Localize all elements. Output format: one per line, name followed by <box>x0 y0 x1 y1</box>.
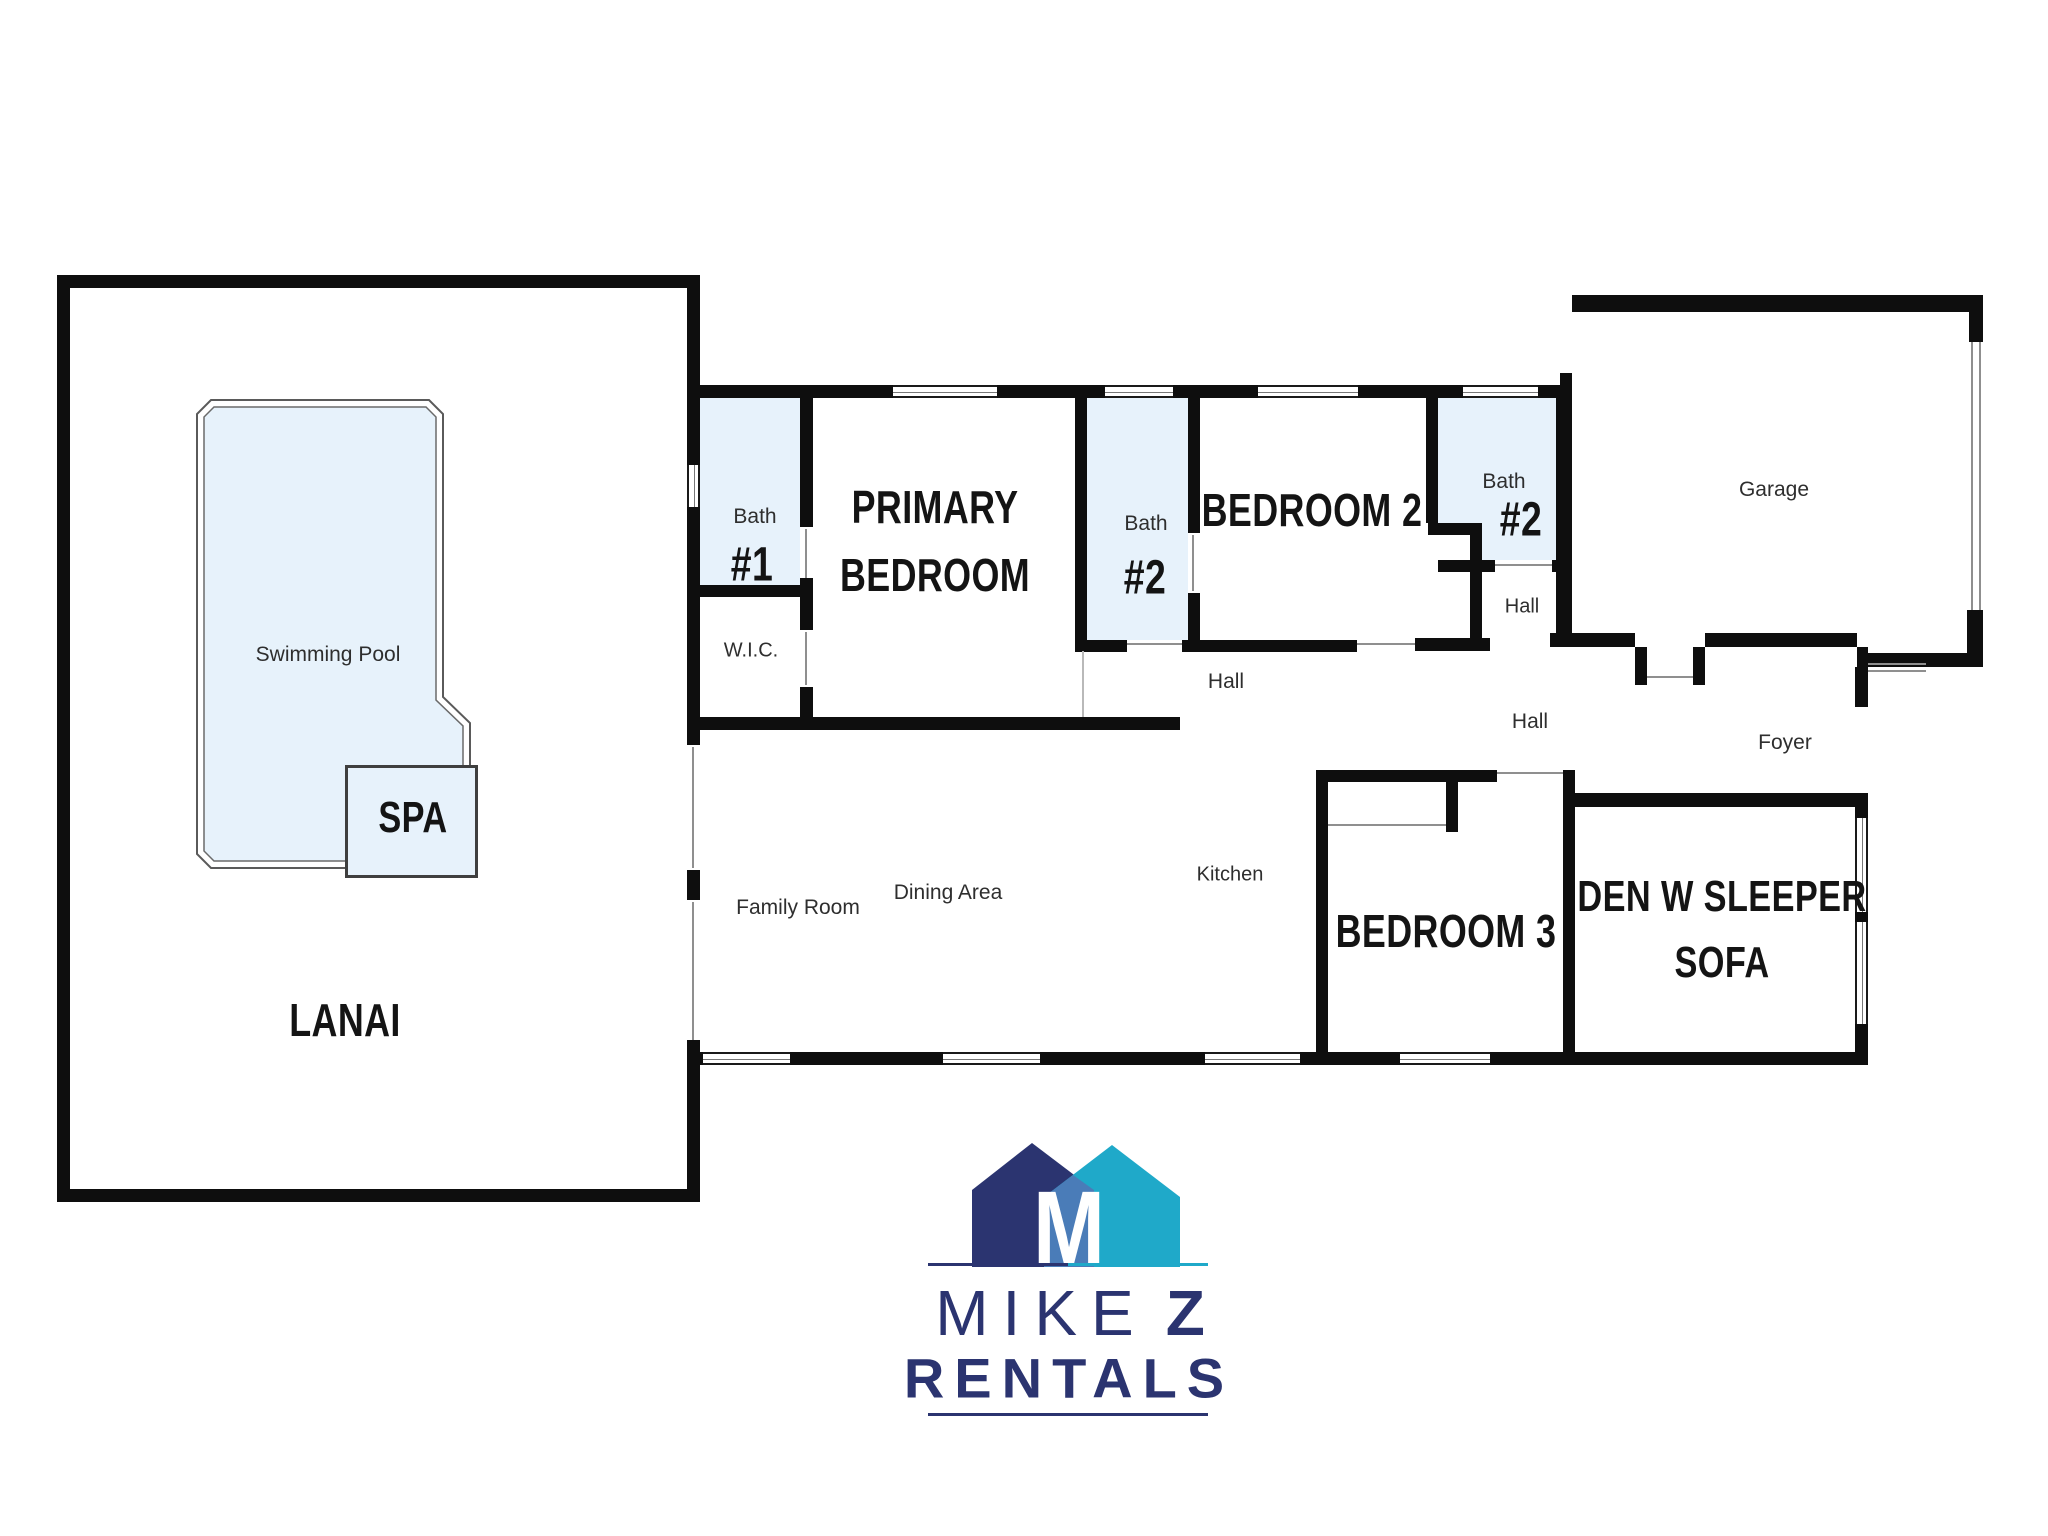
door-line <box>1495 564 1552 566</box>
wall <box>1446 782 1458 832</box>
wall <box>687 870 700 900</box>
wall <box>790 1052 943 1065</box>
wic-label: W.I.C. <box>724 640 778 663</box>
garage-door-line <box>1979 342 1981 610</box>
window <box>1400 1052 1490 1065</box>
wall <box>1173 385 1258 398</box>
window <box>1105 385 1173 398</box>
wall <box>1438 560 1495 572</box>
bath2a-label: Bath <box>1124 512 1167 536</box>
swimming-pool-label: Swimming Pool <box>256 643 401 667</box>
primary-bedroom-label-line1: PRIMARY <box>852 480 1019 534</box>
opening-line <box>1082 651 1084 717</box>
wall <box>1490 1052 1868 1065</box>
den-label-line1: DEN W SLEEPER <box>1577 872 1866 922</box>
wall <box>1967 610 1983 667</box>
door-threshold <box>1647 676 1693 678</box>
foyer-label: Foyer <box>1758 731 1812 755</box>
hall-main-label: Hall <box>1208 670 1244 694</box>
hall-upper-label: Hall <box>1505 596 1539 619</box>
garage-label: Garage <box>1739 478 1809 502</box>
logo-word-rentals: RENTALS <box>904 1346 1234 1411</box>
bedroom2-label: BEDROOM 2 <box>1202 483 1423 537</box>
wall <box>1300 1052 1400 1065</box>
wall <box>1316 770 1497 782</box>
bath2b-label: Bath <box>1482 470 1525 494</box>
wall <box>57 275 700 288</box>
wall <box>1040 1052 1205 1065</box>
dining-area-label: Dining Area <box>894 881 1003 905</box>
wall <box>1693 647 1705 685</box>
closet-line <box>1328 824 1446 826</box>
door-line <box>805 632 807 685</box>
garage-door-line <box>1971 342 1973 610</box>
wall <box>687 717 1180 730</box>
wall <box>57 1189 700 1202</box>
wall <box>1572 295 1983 312</box>
door-line <box>1357 643 1417 645</box>
wall <box>1969 312 1983 342</box>
door-line <box>1127 643 1182 645</box>
wall <box>1563 770 1575 1052</box>
logo-word-mike: MIKE <box>935 1277 1147 1349</box>
entry-stoop-line <box>1868 663 1926 665</box>
bath1-number: #1 <box>731 538 773 593</box>
wall <box>1426 385 1438 523</box>
wall <box>687 507 700 745</box>
wall <box>687 1052 703 1065</box>
wall <box>1428 523 1482 535</box>
slider-door-line <box>692 902 694 1040</box>
wall <box>800 597 813 630</box>
wall <box>1560 373 1572 567</box>
door-line <box>1497 772 1563 774</box>
wall <box>1358 385 1463 398</box>
bath2b-number: #2 <box>1500 493 1542 548</box>
logo-houses: M <box>960 1135 1190 1275</box>
window <box>703 1052 790 1065</box>
wall <box>800 385 813 527</box>
logo-divider-left <box>928 1263 1068 1266</box>
wall <box>1550 633 1635 647</box>
wall <box>687 275 700 465</box>
window <box>1205 1052 1300 1065</box>
wall <box>1855 807 1868 818</box>
window <box>893 385 997 398</box>
slider-door-line <box>692 747 694 868</box>
spa-label: SPA <box>378 793 447 843</box>
floor-plan: Swimming Pool SPA LANAI Bath #1 W.I.C. P… <box>0 0 2048 1536</box>
bedroom3-label: BEDROOM 3 <box>1336 904 1557 958</box>
closet-area <box>1438 535 1470 638</box>
wall <box>1188 385 1200 533</box>
window <box>1855 922 1868 1024</box>
window <box>1258 385 1358 398</box>
wall <box>1197 640 1357 652</box>
wall <box>57 275 70 1202</box>
primary-bedroom-label-line2: BEDROOM <box>840 548 1030 602</box>
logo-monogram: M <box>1033 1168 1105 1289</box>
wall <box>1470 535 1482 647</box>
wall <box>1705 633 1857 647</box>
logo-wordmark: MIKEZ <box>935 1276 1205 1350</box>
door-line <box>1192 535 1194 591</box>
wall <box>1316 770 1328 1052</box>
window <box>687 465 700 507</box>
wall <box>997 385 1105 398</box>
den-label-line2: SOFA <box>1674 938 1769 988</box>
family-room-label: Family Room <box>736 896 860 920</box>
wall <box>800 687 813 717</box>
bath1-label: Bath <box>733 505 776 529</box>
wall <box>1563 793 1868 807</box>
entry-stoop-line <box>1868 670 1926 672</box>
lanai-label: LANAI <box>289 993 401 1047</box>
hall-east-label: Hall <box>1512 710 1548 734</box>
wall <box>1855 667 1868 707</box>
wall <box>1075 385 1087 651</box>
wall <box>700 385 893 398</box>
bath2a-number: #2 <box>1124 551 1166 606</box>
kitchen-label: Kitchen <box>1197 864 1264 887</box>
logo-word-z: Z <box>1166 1277 1205 1349</box>
door-line <box>805 529 807 578</box>
logo-divider-right <box>1068 1263 1208 1266</box>
window <box>943 1052 1040 1065</box>
logo-underline <box>928 1413 1208 1416</box>
window <box>1463 385 1538 398</box>
wall <box>1635 647 1647 685</box>
